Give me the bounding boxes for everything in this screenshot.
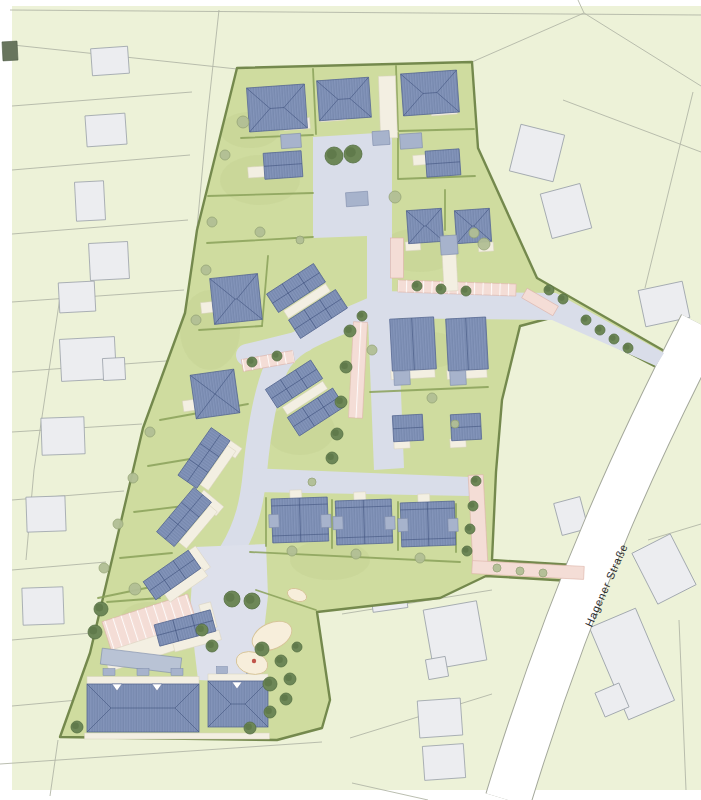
tree-light <box>145 427 155 437</box>
garage <box>385 516 395 529</box>
garage <box>398 518 408 531</box>
tree-dark <box>581 315 591 325</box>
tree-dark <box>462 546 472 556</box>
site-plan-svg <box>0 0 701 800</box>
dark-shed <box>2 41 18 61</box>
tree-dark <box>255 642 269 656</box>
tree-light <box>113 519 123 529</box>
tree-light <box>539 569 547 577</box>
tree-dark <box>263 677 277 691</box>
tree-dark <box>206 640 218 652</box>
tree-light <box>220 150 230 160</box>
entry-tab <box>171 669 183 676</box>
driveway <box>85 733 270 739</box>
garage <box>333 516 343 529</box>
tree-dark <box>436 284 446 294</box>
tree-dark <box>244 593 260 609</box>
site-plan-page: Hagener Straße <box>0 0 701 800</box>
house-hip <box>247 84 308 132</box>
tree-light <box>367 345 377 355</box>
tree-light <box>478 238 490 250</box>
tree-light <box>469 228 479 238</box>
entry-tab <box>103 669 115 676</box>
existing-building <box>58 281 96 313</box>
tree-dark <box>357 311 367 321</box>
tree-dark <box>344 325 356 337</box>
tree-dark <box>623 343 633 353</box>
garage <box>269 514 279 527</box>
tree-dark <box>326 452 338 464</box>
tree-light <box>415 553 425 563</box>
play-equipment <box>252 659 256 663</box>
tree-dark <box>412 281 422 291</box>
garage <box>400 133 423 149</box>
tree-light <box>493 564 501 572</box>
tree-dark <box>461 286 471 296</box>
house-gable <box>392 414 423 442</box>
tree-dark <box>344 145 362 163</box>
tree-light <box>191 315 201 325</box>
tree-dark <box>244 722 256 734</box>
tree-light <box>427 393 437 403</box>
house-rowblock <box>400 501 456 547</box>
house-rowblock <box>335 499 393 545</box>
garage <box>372 130 390 145</box>
tree-dark <box>292 642 302 652</box>
tree-dark <box>272 351 282 361</box>
tree-dark <box>340 361 352 373</box>
existing-building <box>74 181 105 221</box>
tree-dark <box>280 693 292 705</box>
existing-building <box>417 698 462 738</box>
tree-dark <box>465 524 475 534</box>
tree-light <box>351 549 361 559</box>
tree-light <box>308 478 316 486</box>
garage <box>448 518 458 531</box>
existing-building <box>425 656 448 679</box>
house-hip <box>317 77 372 121</box>
tree-dark <box>609 334 619 344</box>
tree-light <box>516 567 524 575</box>
tree-light <box>389 191 401 203</box>
entry-tab <box>217 667 228 674</box>
existing-building <box>26 496 66 532</box>
garage <box>394 371 411 386</box>
tree-light <box>237 116 249 128</box>
tree-light <box>128 473 138 483</box>
house-hip <box>210 274 263 325</box>
house-hip <box>401 70 460 116</box>
tree-light <box>296 236 304 244</box>
existing-building <box>89 242 130 281</box>
tree-light <box>201 265 211 275</box>
house-gable <box>425 149 461 177</box>
tree-light <box>207 217 217 227</box>
tree-dark <box>468 501 478 511</box>
house-hip <box>190 369 240 419</box>
tree-dark <box>88 625 102 639</box>
house-rowblock <box>271 497 329 543</box>
house-semi <box>446 317 489 371</box>
tree-dark <box>264 706 276 718</box>
tree-light <box>255 227 265 237</box>
tree-light <box>99 563 109 573</box>
tree-dark <box>558 294 568 304</box>
tree-dark <box>275 655 287 667</box>
tree-dark <box>595 325 605 335</box>
existing-building <box>22 587 64 625</box>
entry-tab <box>137 669 149 676</box>
tree-dark <box>224 591 240 607</box>
garage <box>440 235 458 255</box>
house-semi <box>390 317 437 371</box>
tree-light <box>287 546 297 556</box>
tree-dark <box>71 721 83 733</box>
house-apt <box>87 684 199 732</box>
tree-dark <box>94 602 108 616</box>
garage <box>450 371 467 386</box>
garage <box>281 133 302 148</box>
tree-light <box>451 420 459 428</box>
tree-dark <box>335 396 347 408</box>
existing-building <box>41 417 85 455</box>
existing-building <box>422 744 465 781</box>
tree-dark <box>284 673 296 685</box>
driveway <box>378 76 397 139</box>
tree-dark <box>471 476 481 486</box>
house-hip <box>406 208 443 243</box>
tree-light <box>129 583 141 595</box>
terrace <box>248 166 267 178</box>
parking-strip <box>391 238 404 278</box>
garage <box>346 191 369 207</box>
tree-dark <box>247 357 257 367</box>
garage <box>321 514 331 527</box>
existing-building <box>102 357 125 380</box>
existing-building <box>91 46 130 76</box>
existing-building <box>85 113 127 147</box>
tree-dark <box>196 624 208 636</box>
tree-dark <box>331 428 343 440</box>
house-gable <box>263 151 303 180</box>
tree-dark <box>325 147 343 165</box>
tree-dark <box>544 285 554 295</box>
